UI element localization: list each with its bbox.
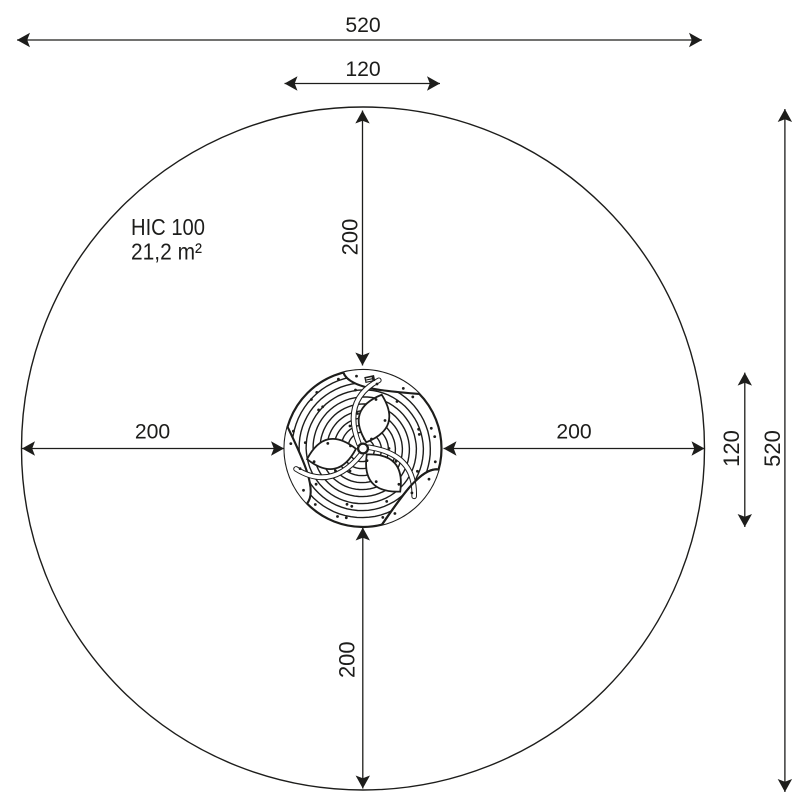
svg-text:120: 120 xyxy=(345,58,380,81)
svg-text:200: 200 xyxy=(338,219,363,256)
svg-text:200: 200 xyxy=(335,641,360,678)
svg-text:200: 200 xyxy=(135,420,170,443)
svg-text:120: 120 xyxy=(719,430,744,467)
svg-text:HIC 100: HIC 100 xyxy=(131,214,205,240)
svg-text:520: 520 xyxy=(345,14,380,37)
svg-text:520: 520 xyxy=(760,430,785,467)
svg-text:21,2 m²: 21,2 m² xyxy=(131,239,202,265)
svg-text:200: 200 xyxy=(556,420,591,443)
